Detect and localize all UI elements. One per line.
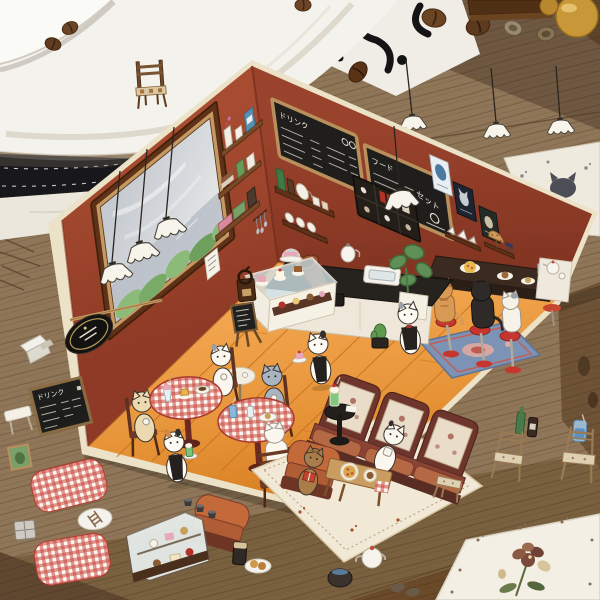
table2-glass [247, 406, 254, 417]
cat-bar-white-grey [501, 290, 522, 332]
sticker-grey-cabinet [14, 520, 36, 540]
sticker-dark-glass [232, 542, 247, 565]
photo-cat-cafe-diorama: ドリンク フード セット [0, 0, 600, 600]
sticker-green-picture [8, 445, 32, 470]
sticker-pancake-plate [245, 559, 271, 573]
scene-canvas: ドリンク フード セット [0, 0, 600, 600]
sticker-dark-pot [328, 569, 352, 587]
